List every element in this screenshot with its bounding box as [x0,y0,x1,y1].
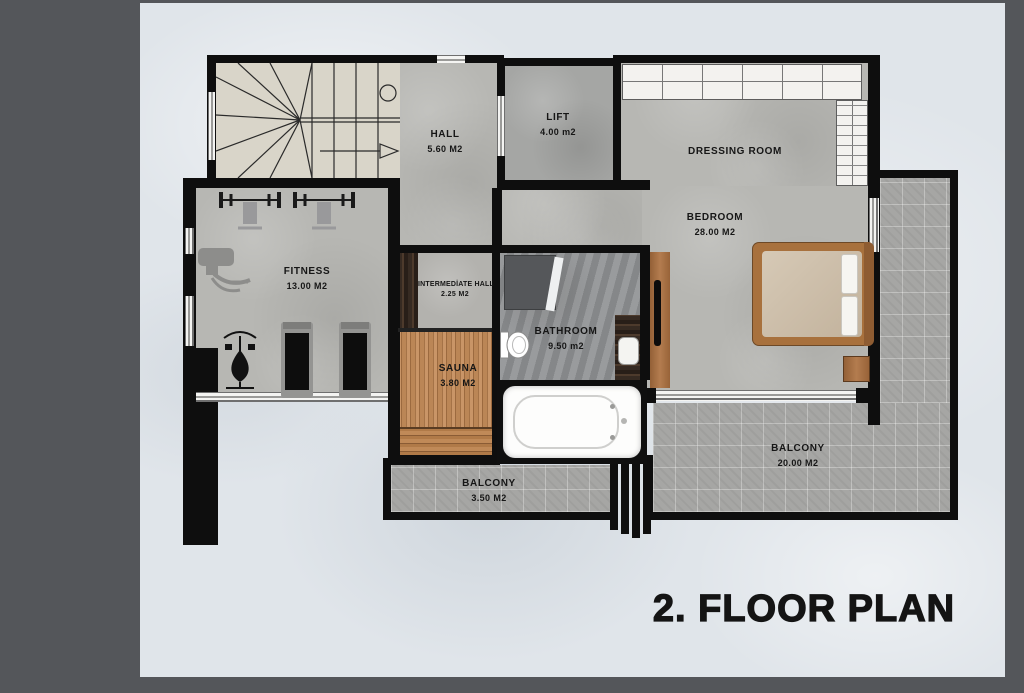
bed-pillow [841,296,858,336]
room-label-bedroom: BEDROOM 28.00 M2 [665,211,765,239]
louver-bar [643,458,651,534]
room-label-bathroom: BATHROOM 9.50 m2 [516,325,616,353]
wall-bathroom-top [492,245,650,253]
wall-bedroom-left [640,245,650,380]
dark-wood-floor [398,252,418,330]
room-balcony-large-right [880,178,950,403]
room-hall [400,63,497,252]
bathtub-faucet-dot [610,404,615,409]
sink [618,337,639,365]
bed-headboard [864,242,874,346]
wall-balcony-large-right [950,170,958,520]
stair-newel-circle [380,85,396,101]
bathtub-drain [621,418,627,424]
room-label-intermediate-hall: INTERMEDİATE HALL 2.25 M2 [418,280,492,300]
treadmill-belt [343,333,367,390]
shower [504,255,556,310]
bathtub-surround [497,380,647,464]
treadmill-console [341,322,369,329]
louver-bar [621,458,629,534]
room-sauna [398,332,492,455]
wardrobe-top [622,64,862,100]
wall-balcony-large-top [880,170,958,178]
door-hall-top [437,55,465,63]
wardrobe-right [836,100,868,186]
bed-pillow [841,254,858,294]
wall-fitness-top [183,178,400,188]
stair-direction-arrow [380,144,398,158]
wall-sauna-bottom [390,455,492,465]
window-fitness-left-2 [185,296,194,346]
vanity [615,315,640,380]
page-title: 2. FLOOR PLAN [638,588,970,631]
wall-hall-right [492,188,502,252]
room-label-balcony-large: BALCONY 20.00 M2 [748,442,848,470]
punching-bag [216,326,264,394]
room-staircase [216,63,400,178]
wall-inthall-top [388,245,492,253]
room-label-fitness: FITNESS 13.00 M2 [257,265,357,293]
window-fitness-left-1 [185,228,194,254]
window-lift-left [497,96,505,156]
room-label-sauna: SAUNA 3.80 M2 [408,362,508,390]
wall-top-dressing [613,55,880,63]
wall-inthall-sauna-divider [398,328,492,332]
louver-bar [610,458,618,530]
treadmill [339,322,371,398]
bathtub-basin [513,395,619,449]
louver-bar [632,458,640,538]
bench-press-station [214,190,286,236]
room-label-dressing: DRESSING ROOM [650,145,820,160]
wall-balcony-small-bottom [383,512,615,520]
tv-unit [650,252,670,388]
wall-left-pier [183,348,218,545]
window-stair-left [208,92,215,160]
room-label-hall: HALL 5.60 M2 [400,128,490,156]
wall-bedroom-window-end-right [856,388,870,403]
treadmill-console [283,322,311,329]
bedroom-dresser [843,356,870,382]
bathtub [503,386,641,458]
exercise-bike [196,244,256,300]
wall-fitness-right [388,178,400,400]
bench-press-station [288,190,360,236]
wall-corridor-top [497,180,650,190]
corridor-floor [502,190,642,246]
staircase-drawing [216,63,400,178]
room-label-balcony-small: BALCONY 3.50 M2 [439,477,539,505]
window-bedroom-bottom [656,390,856,401]
treadmill-belt [285,333,309,390]
wall-balcony-small-left [383,458,391,520]
bathtub-faucet-dot [610,435,615,440]
room-label-lift: LIFT 4.00 m2 [508,111,608,139]
bed [752,242,874,346]
floor-plan-canvas: HALL 5.60 M2 LIFT 4.00 m2 DRESSING ROOM … [0,0,1024,693]
treadmill [281,322,313,398]
tv-screen [654,280,661,346]
wall-balcony-large-bottom [645,512,958,520]
sauna-bench [398,427,492,455]
